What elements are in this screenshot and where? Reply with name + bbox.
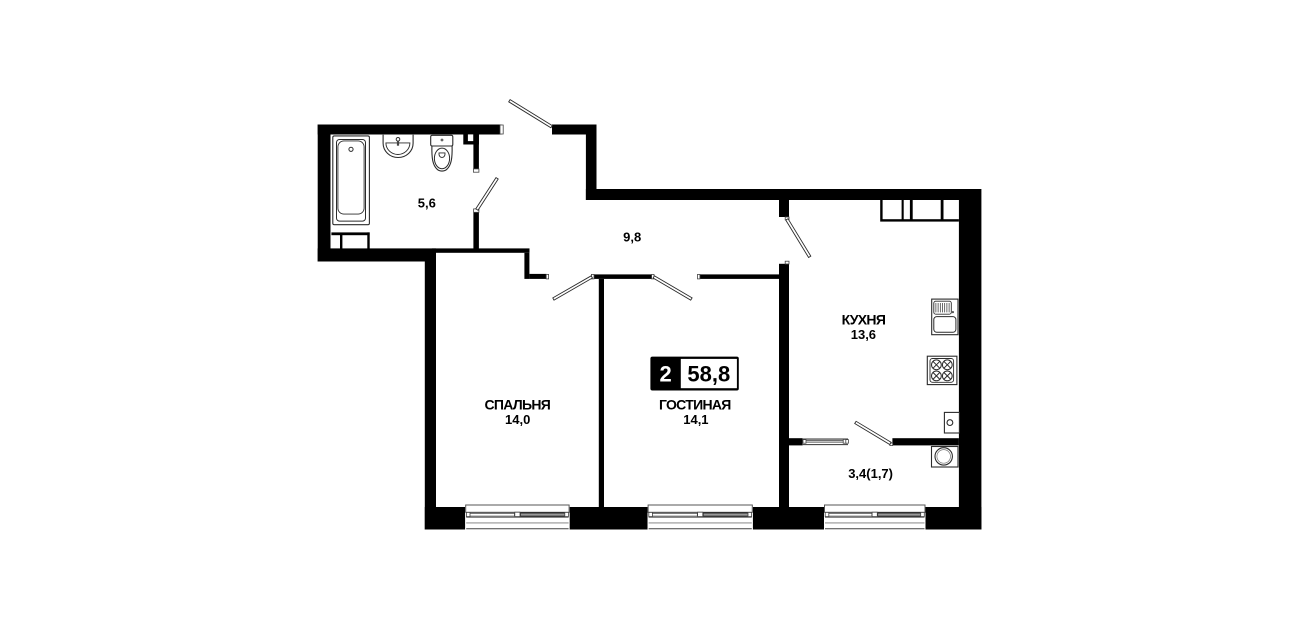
- svg-text:9,8: 9,8: [623, 229, 641, 244]
- svg-text:58,8: 58,8: [687, 361, 730, 386]
- svg-text:СПАЛЬНЯ: СПАЛЬНЯ: [484, 397, 550, 413]
- svg-text:14,0: 14,0: [505, 412, 530, 427]
- svg-text:2: 2: [659, 361, 671, 386]
- svg-text:КУХНЯ: КУХНЯ: [842, 312, 886, 328]
- svg-text:5,6: 5,6: [418, 195, 436, 210]
- svg-text:13,6: 13,6: [851, 327, 876, 342]
- svg-text:3,4(1,7): 3,4(1,7): [848, 466, 893, 481]
- svg-text:14,1: 14,1: [683, 412, 708, 427]
- svg-text:ГОСТИНАЯ: ГОСТИНАЯ: [659, 397, 731, 413]
